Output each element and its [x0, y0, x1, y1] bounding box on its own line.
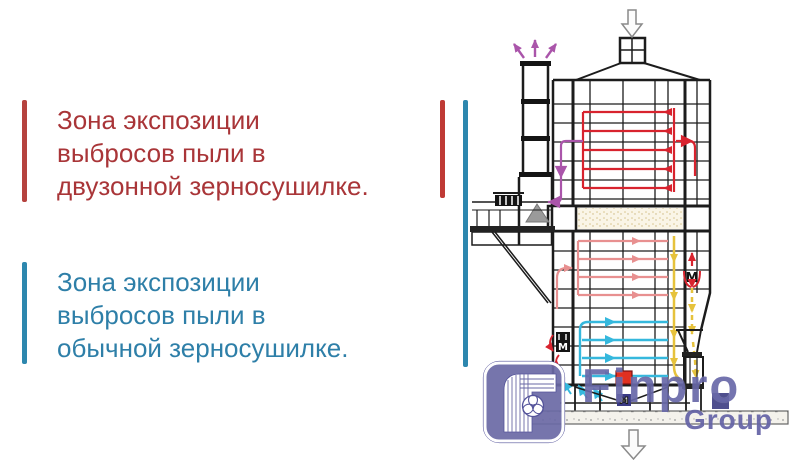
- chimney: [472, 61, 553, 245]
- slide-canvas: Зона экспозиции выбросов пыли в двузонно…: [0, 0, 804, 462]
- grain-layer: [576, 208, 683, 229]
- dryer-tower-structure: [548, 38, 710, 390]
- finpro-logo-icon: [484, 362, 565, 443]
- grain-inlet-arrow: [622, 10, 642, 37]
- logo-subtitle: Group: [684, 404, 773, 436]
- support-brace: [492, 232, 551, 303]
- burner-cone: [526, 204, 549, 222]
- service-platform: [470, 193, 555, 303]
- top-hopper: [576, 38, 700, 80]
- grain-outlet-arrow: [622, 430, 645, 459]
- chimney-exhaust-arrows: [514, 40, 556, 58]
- fan-motor-label: M: [558, 342, 568, 353]
